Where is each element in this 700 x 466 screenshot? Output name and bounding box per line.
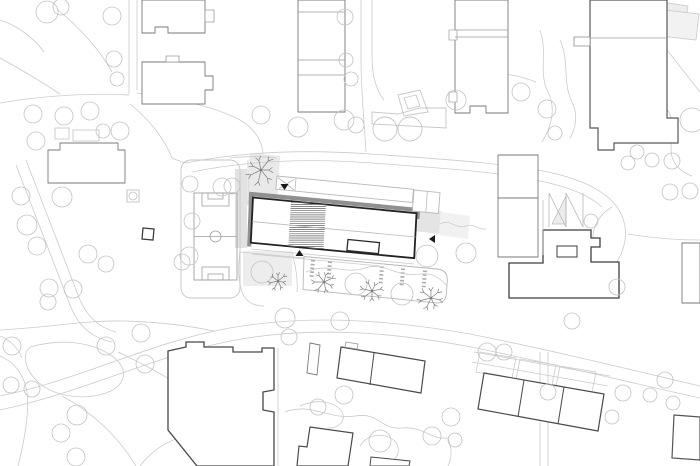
sketch-tree-trunk	[371, 290, 373, 292]
context-building-annex	[449, 30, 457, 40]
context-building-east-b	[498, 198, 538, 257]
context-building-annex	[205, 10, 214, 22]
context-building-northwest-a	[142, 0, 205, 33]
sketch-tree-trunk	[260, 169, 262, 171]
context-building-annex	[166, 56, 179, 62]
context-building-inner-court	[557, 246, 577, 257]
context-building-southeast-corner	[672, 415, 700, 460]
context-building-southwest	[168, 342, 274, 466]
shed	[73, 130, 99, 141]
site-plan-canvas	[0, 0, 700, 466]
context-building-east-edge	[682, 243, 700, 303]
context-building-west	[48, 143, 125, 183]
sketch-tree-trunk	[430, 297, 432, 299]
sketch-tree-trunk	[277, 280, 279, 282]
site-plan-map	[0, 0, 700, 466]
context-building-northeast-b	[590, 0, 678, 150]
context-building-annex	[574, 37, 590, 46]
paved-patch	[439, 212, 470, 239]
context-building-northwest-b	[142, 62, 213, 104]
context-building-northeast-a	[455, 0, 508, 113]
kiosk	[142, 228, 154, 240]
shed	[55, 128, 69, 139]
building-annex	[347, 240, 380, 254]
sketch-tree-trunk	[323, 281, 325, 283]
context-building-east-a	[498, 155, 538, 198]
context-building-annex	[449, 92, 457, 102]
context-building-north-center	[298, 0, 345, 112]
